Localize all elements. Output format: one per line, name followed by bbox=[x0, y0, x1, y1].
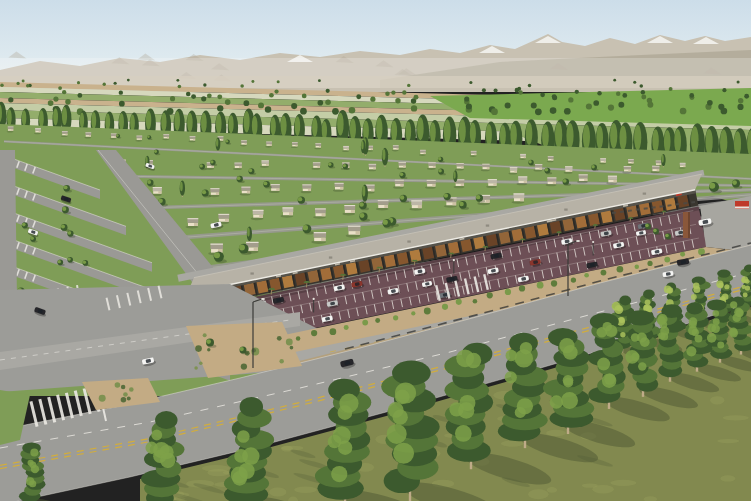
rooftop-unit bbox=[486, 224, 489, 226]
shrub bbox=[115, 382, 121, 388]
shrub bbox=[194, 366, 198, 370]
rooftop-unit bbox=[407, 240, 410, 242]
billboard-band bbox=[735, 207, 749, 209]
shrub bbox=[127, 396, 131, 400]
shrub bbox=[121, 397, 127, 403]
rooftop-unit bbox=[643, 193, 646, 195]
shrub bbox=[195, 345, 202, 352]
shrub bbox=[279, 359, 283, 363]
shrub bbox=[207, 348, 210, 351]
edge-road bbox=[0, 150, 17, 300]
shrub bbox=[277, 336, 282, 341]
shrub bbox=[123, 392, 128, 397]
rooftop-unit bbox=[250, 272, 253, 274]
aerial-community-render bbox=[0, 0, 751, 501]
rendered-scene bbox=[0, 0, 751, 501]
shrub bbox=[290, 346, 294, 350]
shrub bbox=[99, 395, 106, 402]
shrub bbox=[121, 385, 125, 389]
shrub bbox=[199, 361, 203, 365]
shrub bbox=[129, 387, 134, 392]
shrub bbox=[203, 333, 207, 337]
shrub bbox=[286, 339, 293, 346]
rooftop-unit bbox=[564, 209, 567, 211]
monument-shade bbox=[688, 212, 690, 238]
rooftop-unit bbox=[329, 256, 332, 258]
shrub bbox=[241, 363, 247, 369]
